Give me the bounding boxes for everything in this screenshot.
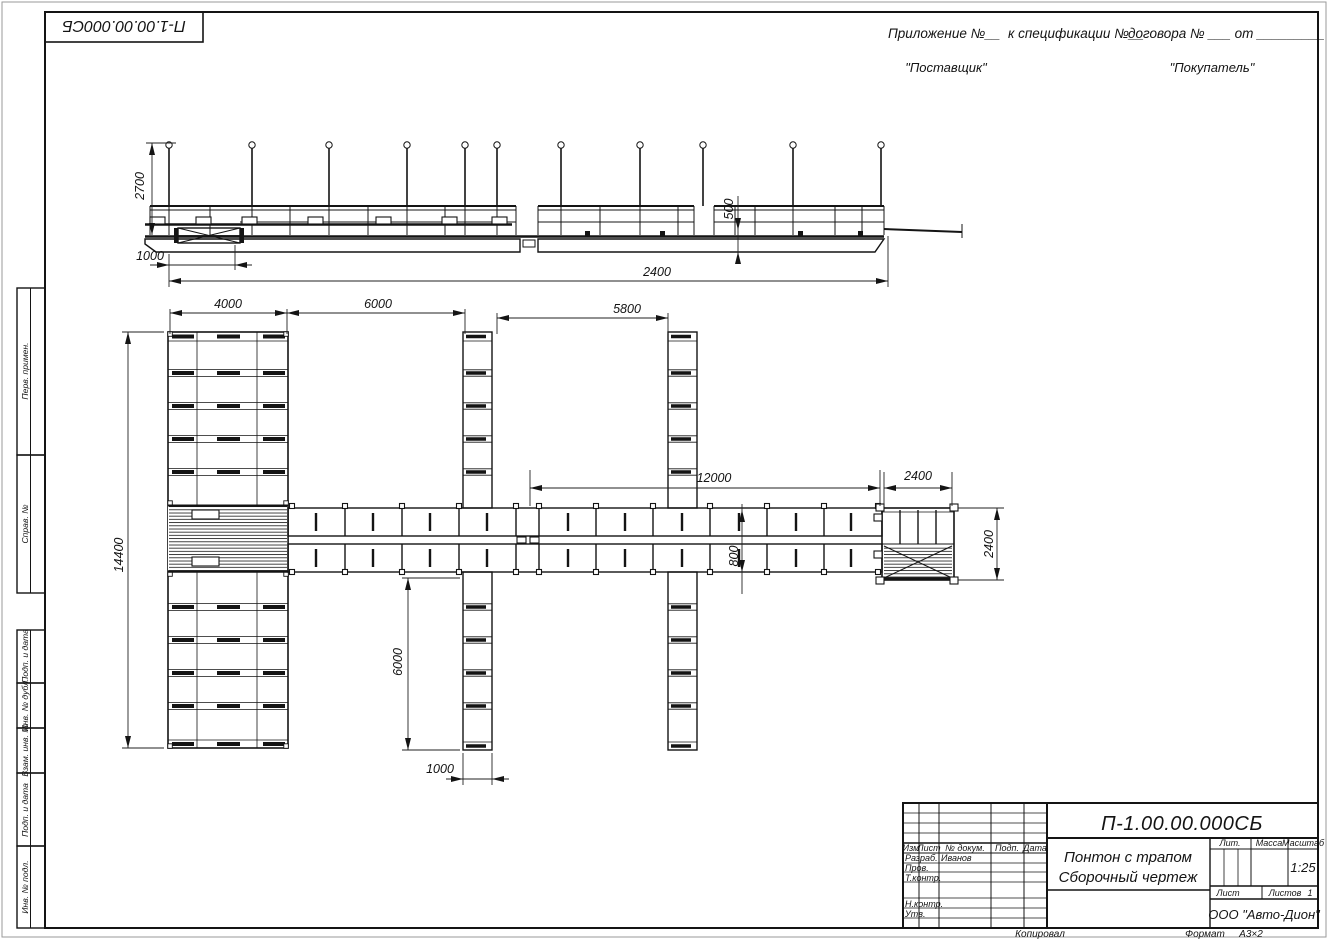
tb-masshtab-label: Масштаб bbox=[1282, 838, 1325, 848]
dim-plan-6000: 6000 bbox=[364, 297, 392, 311]
title-block: Изм Лист № докум. Подп. Дата Разраб. Ива… bbox=[903, 803, 1325, 928]
finger-piers bbox=[463, 332, 697, 750]
tb-row-nkontr: Н.контр. bbox=[905, 899, 943, 909]
margin-columns: Перв. примен. Справ. № Подп. и дата Инв.… bbox=[17, 288, 45, 928]
tb-razrab-name: Иванов bbox=[941, 853, 972, 863]
hull-section-1 bbox=[145, 239, 520, 252]
drawing-sheet: П-1.00.00.000СБ Приложение №__ к специфи… bbox=[0, 0, 1328, 939]
shore-platform bbox=[874, 504, 958, 584]
tb-lit-label: Лит. bbox=[1218, 838, 1240, 848]
dim-side-1000: 1000 bbox=[136, 249, 164, 263]
dim-plan-4000: 4000 bbox=[214, 297, 242, 311]
main-pontoon bbox=[168, 332, 288, 749]
tb-row-razrab: Разраб. bbox=[905, 853, 938, 863]
stamp-doc-number: П-1.00.00.000СБ bbox=[62, 17, 185, 34]
footer-copied: Копировал bbox=[1015, 929, 1065, 939]
tb-sheets-label: Листов bbox=[1268, 888, 1302, 898]
tb-col-podp: Подп. bbox=[995, 843, 1019, 853]
appendix-part-2: к спецификации №__ bbox=[1008, 26, 1144, 41]
tb-sheet-label: Лист bbox=[1215, 888, 1240, 898]
tb-massa-label: Масса bbox=[1256, 838, 1283, 848]
tb-row-utv: Утв. bbox=[904, 909, 925, 919]
walkway bbox=[288, 504, 882, 575]
side-dimensions: 2700 1000 2400 500 bbox=[133, 143, 888, 287]
hull-section-2 bbox=[538, 239, 884, 252]
dim-plan-2400-top: 2400 bbox=[903, 469, 932, 483]
dim-plan-6000-v: 6000 bbox=[391, 648, 405, 676]
supplier-label: "Поставщик" bbox=[905, 60, 988, 75]
tb-col-data: Дата bbox=[1022, 843, 1047, 853]
plan-view bbox=[168, 332, 958, 750]
tb-row-tkontr: Т.контр. bbox=[905, 873, 941, 883]
scissor-lift bbox=[174, 228, 244, 243]
margin-perv-primen: Перв. примен. bbox=[20, 342, 30, 399]
side-view bbox=[145, 142, 962, 252]
buyer-label: "Покупатель" bbox=[1170, 60, 1256, 75]
dim-plan-12000: 12000 bbox=[697, 471, 732, 485]
page-edge bbox=[2, 2, 1326, 937]
margin-podp-data-2: Подп. и дата bbox=[20, 783, 30, 837]
dim-plan-2400-right: 2400 bbox=[982, 530, 996, 559]
footer-format-value: А3×2 bbox=[1238, 929, 1263, 939]
hatch-lid-2 bbox=[192, 557, 219, 566]
shore-plank bbox=[884, 229, 962, 232]
tb-title-line2: Сборочный чертеж bbox=[1059, 869, 1198, 886]
dim-plan-5800: 5800 bbox=[613, 302, 641, 316]
top-left-stamp: П-1.00.00.000СБ bbox=[45, 12, 203, 42]
drawing-canvas: П-1.00.00.000СБ Приложение №__ к специфи… bbox=[0, 0, 1328, 939]
tb-title-line1: Понтон с трапом bbox=[1064, 849, 1192, 866]
tb-scale-value: 1:25 bbox=[1290, 860, 1316, 875]
tb-org-name: ООО "Авто-Дион" bbox=[1208, 907, 1321, 922]
appendix-part-3: договора № ___ от _________ bbox=[1128, 26, 1325, 41]
dim-plan-800: 800 bbox=[727, 546, 741, 567]
dim-side-2700: 2700 bbox=[133, 172, 147, 201]
appendix-part-1: Приложение №__ bbox=[888, 26, 1000, 41]
tb-row-prov: Пров. bbox=[905, 863, 929, 873]
appendix-annotation: Приложение №__ к спецификации №__ догово… bbox=[888, 26, 1325, 75]
dim-plan-14400: 14400 bbox=[112, 538, 126, 573]
tb-doc-number: П-1.00.00.000СБ bbox=[1101, 813, 1263, 835]
tb-sheets-value: 1 bbox=[1307, 888, 1312, 898]
footer-format-label: Формат bbox=[1185, 929, 1225, 939]
hatched-walk-band bbox=[169, 506, 287, 571]
margin-inv-podl: Инв. № подл. bbox=[20, 860, 30, 913]
tb-col-list: Лист bbox=[916, 843, 941, 853]
tb-col-dokum: № докум. bbox=[945, 843, 985, 853]
margin-podp-data-1: Подп. и дата bbox=[20, 629, 30, 683]
margin-sprav-no: Справ. № bbox=[20, 504, 30, 543]
dim-plan-1000: 1000 bbox=[426, 762, 454, 776]
margin-vzam-inv: Взам. инв. № bbox=[20, 723, 30, 776]
dim-side-500: 500 bbox=[722, 199, 736, 220]
hatch-lid-1 bbox=[192, 510, 219, 519]
dim-side-2400: 2400 bbox=[642, 265, 671, 279]
